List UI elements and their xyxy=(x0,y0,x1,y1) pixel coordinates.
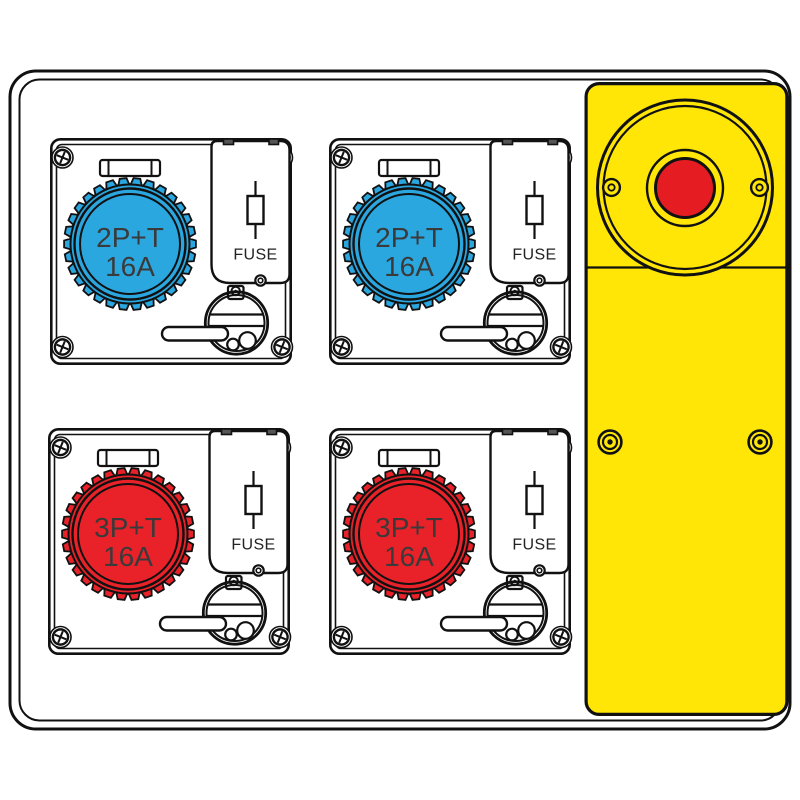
socket-rating-line2: 16A xyxy=(384,541,434,572)
fuse-label: FUSE xyxy=(512,247,556,264)
socket-rating-line2: 16A xyxy=(103,541,153,572)
socket-rating-line1: 3P+T xyxy=(375,512,443,543)
panel-fixing-screw-right xyxy=(749,431,772,454)
estop-mount-screw-left xyxy=(603,179,620,196)
socket-unit-bottom-right[interactable]: 3P+T 16A FUSE xyxy=(330,429,571,654)
fuse-label: FUSE xyxy=(512,537,556,554)
emergency-stop-assembly xyxy=(598,100,773,275)
fuse-label: FUSE xyxy=(231,537,275,554)
socket-rating-line2: 16A xyxy=(384,251,434,282)
socket-rating-line1: 2P+T xyxy=(375,222,443,253)
emergency-stop-panel xyxy=(586,84,787,715)
drawing-canvas: 2P+T 16A FUSE 2P+T 16A FUSE 3P+T 16A FUS… xyxy=(0,0,800,800)
socket-unit-top-left[interactable]: 2P+T 16A FUSE xyxy=(51,139,292,364)
estop-mount-screw-right xyxy=(751,179,768,196)
panel-fixing-screw-left xyxy=(599,431,622,454)
socket-unit-bottom-left[interactable]: 3P+T 16A FUSE xyxy=(49,429,290,654)
emergency-stop-button[interactable] xyxy=(656,159,715,218)
socket-rating-line2: 16A xyxy=(105,251,155,282)
fuse-label: FUSE xyxy=(233,247,277,264)
socket-rating-line1: 3P+T xyxy=(94,512,162,543)
socket-unit-top-right[interactable]: 2P+T 16A FUSE xyxy=(330,139,571,364)
socket-rating-line1: 2P+T xyxy=(96,222,164,253)
